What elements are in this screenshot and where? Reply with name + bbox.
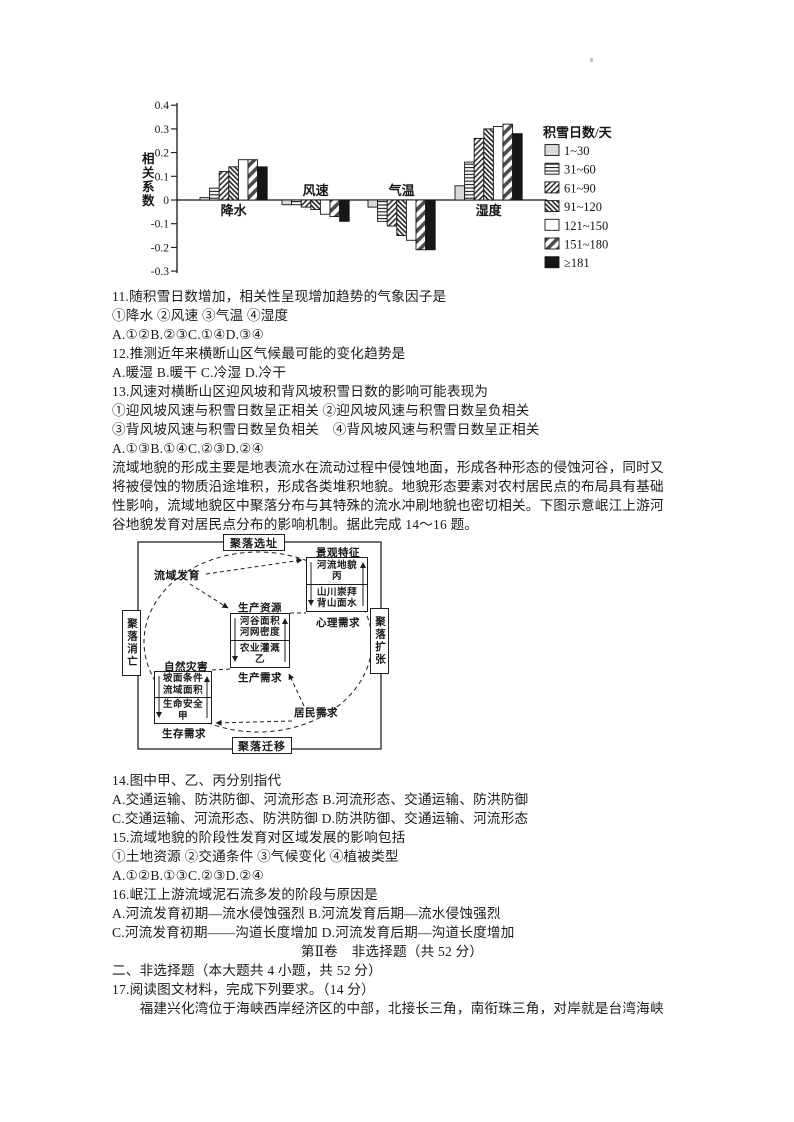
bar-风速-91~120: [311, 200, 321, 209]
question-14-answers-cd: C.交通运输、河流形态、防洪防御 D.防洪防御、交通运输、河流形态: [112, 809, 712, 828]
legend-label-0: 1~30: [564, 144, 590, 158]
bar-湿度-31~60: [465, 162, 475, 200]
y-tick-label: -0.1: [151, 219, 169, 231]
compound-box-resource: 河谷面积 河网密度 农业灌溉 乙: [230, 613, 290, 668]
bar-降水-91~120: [229, 167, 239, 200]
landscape-line-2: 丙: [332, 571, 342, 583]
legend-swatch-1: [545, 163, 559, 174]
question-11: 11.随积雪日数增加，相关性呈现增加趋势的气象因子是: [112, 287, 712, 306]
bar-风速-31~60: [292, 200, 302, 205]
correlation-chart: 0.40.30.20.10-0.1-0.2-0.3相关系数降水风速气温湿度积雪日…: [125, 85, 725, 290]
section-2-heading: 二、非选择题（本大题共 4 小题，共 52 分）: [112, 961, 712, 980]
bar-湿度-≥181: [513, 134, 523, 200]
question-15: 15.流域地貌的阶段性发育对区域发展的影响包括: [112, 828, 712, 847]
resource-top-section: 河谷面积 河网密度: [231, 614, 289, 640]
landscape-line-1: 河流地貌: [317, 560, 357, 572]
passage-line-3: 性影响，流域地貌区中聚落分布与其特殊的流水冲刷地貌也密切相关。下图示意岷江上游河: [112, 496, 712, 515]
passage-line-2: 将被侵蚀的物质沿途堆积，形成各类堆积地貌。地貌形态要素对农村居民点的布局具有基础: [112, 477, 712, 496]
box-settlement-expansion: 聚落扩张: [370, 608, 389, 674]
correlation-chart-svg: 0.40.30.20.10-0.1-0.2-0.3相关系数降水风速气温湿度积雪日…: [125, 85, 725, 290]
arrow-residents-to-disaster: [216, 721, 292, 723]
bar-湿度-151~180: [503, 124, 513, 200]
question-17-passage: 福建兴化湾位于海峡西岸经济区的中部，北接长三角，南衔珠三角，对岸就是台湾海峡: [112, 999, 712, 1018]
question-13: 13.风速对横断山区迎风坡和背风坡积雪日数的影响可能表现为: [112, 382, 712, 401]
category-label-1: 风速: [303, 183, 329, 198]
legend-title: 积雪日数/天: [543, 125, 613, 140]
question-13-options-2: ③背风坡风速与积雪日数呈负相关 ④背风坡风速与积雪日数呈正相关: [112, 420, 712, 439]
question-13-answers: A.①③B.①④C.②③D.②④: [112, 439, 712, 458]
legend-swatch-2: [545, 182, 559, 193]
label-watershed-development: 流域发育: [154, 567, 200, 583]
y-tick-label: 0.3: [155, 124, 170, 136]
question-14: 14.图中甲、乙、丙分别指代: [112, 771, 712, 790]
y-axis-title-char: 数: [141, 193, 155, 208]
connector-disaster-resource: [212, 669, 230, 670]
bar-降水-1~30: [200, 198, 210, 200]
y-tick-label: 0.2: [155, 148, 170, 160]
bar-湿度-61~90: [474, 138, 484, 200]
resource-line-3: 农业灌溉: [240, 643, 280, 655]
arrow-watershed-to-landscape: [206, 560, 302, 574]
bar-气温-121~150: [406, 200, 416, 240]
bar-风速-≥181: [340, 200, 350, 221]
bar-风速-121~150: [320, 200, 330, 214]
y-tick-label: 0: [163, 195, 169, 207]
question-16: 16.岷江上游流域泥石流多发的阶段与原因是: [112, 885, 712, 904]
resource-line-4: 乙: [255, 654, 265, 666]
legend-swatch-5: [545, 238, 559, 249]
category-label-2: 气温: [389, 183, 415, 198]
landscape-line-4: 背山面水: [317, 598, 357, 610]
settlement-mechanism-diagram: 聚落选址 聚落迁移 聚落消亡 聚落扩张 流域发育 景观特征 心理需求 生产资源 …: [118, 530, 398, 765]
bar-降水-31~60: [210, 188, 220, 200]
landscape-top-section: 河流地貌 丙: [307, 558, 367, 584]
resource-line-1: 河谷面积: [240, 616, 280, 628]
disaster-line-4: 甲: [178, 711, 188, 723]
legend-label-1: 31~60: [564, 163, 596, 177]
y-axis-title-char: 系: [142, 179, 155, 194]
y-axis-title-char: 关: [142, 165, 155, 180]
question-16-answers-ab: A.河流发育初期—流水侵蚀强烈 B.河流发育后期—流水侵蚀强烈: [112, 904, 712, 923]
resource-bottom-section: 农业灌溉 乙: [231, 640, 289, 667]
legend-swatch-0: [545, 145, 559, 156]
scan-artifact-dot: [590, 58, 593, 62]
box-settlement-siting: 聚落选址: [223, 534, 285, 551]
question-12-answers: A.暖湿 B.暖干 C.冷湿 D.冷干: [112, 363, 712, 382]
question-15-options: ①土地资源 ②交通条件 ③气候变化 ④植被类型: [112, 847, 712, 866]
compound-box-disaster: 坡面条件 流域面积 生命安全 甲: [154, 671, 212, 724]
bar-风速-61~90: [301, 200, 311, 207]
question-16-answers-cd: C.河流发育初期——沟道长度增加 D.河流发育后期—沟道长度增加: [112, 923, 712, 942]
bar-降水-61~90: [219, 172, 229, 200]
y-tick-label: 0.4: [155, 100, 170, 112]
legend-label-2: 61~90: [564, 181, 596, 195]
y-tick-label: 0.1: [155, 171, 170, 183]
category-label-0: 降水: [221, 203, 248, 218]
box-settlement-migration: 聚落迁移: [232, 737, 292, 754]
label-residents-need: 居民需求: [294, 705, 338, 720]
bar-降水-≥181: [258, 167, 268, 200]
question-11-options: ①降水 ②风速 ③气温 ④湿度: [112, 306, 712, 325]
bar-气温-1~30: [368, 200, 378, 207]
question-17: 17.阅读图文材料，完成下列要求。（14 分）: [112, 980, 712, 999]
bar-降水-121~150: [238, 160, 248, 200]
question-12: 12.推测近年来横断山区气候最可能的变化趋势是: [112, 344, 712, 363]
arrow-residents-to-resource: [289, 674, 304, 706]
question-14-answers-ab: A.交通运输、防洪防御、河流形态 B.河流形态、交通运输、防洪防御: [112, 790, 712, 809]
disaster-top-section: 坡面条件 流域面积: [155, 672, 211, 697]
legend-label-6: ≥181: [564, 256, 590, 270]
box-settlement-extinction: 聚落消亡: [122, 610, 141, 676]
resource-line-2: 河网密度: [240, 627, 280, 639]
disaster-bottom-section: 生命安全 甲: [155, 697, 211, 723]
label-production-need: 生产需求: [238, 670, 282, 685]
bar-气温-151~180: [416, 200, 426, 250]
bar-气温-31~60: [378, 200, 388, 221]
landscape-line-3: 山川崇拜: [317, 587, 357, 599]
question-11-answers: A.①②B.②③C.①④D.③④: [112, 325, 712, 344]
bar-湿度-1~30: [455, 186, 465, 200]
passage-line-1: 流域地貌的形成主要是地表流水在流动过程中侵蚀地面，形成各种形态的侵蚀河谷，同时又: [112, 458, 712, 477]
question-13-options-1: ①迎风坡风速与积雪日数呈正相关 ②迎风坡风速与积雪日数呈负相关: [112, 401, 712, 420]
y-tick-label: -0.3: [151, 266, 169, 278]
compound-box-landscape: 河流地貌 丙 山川崇拜 背山面水: [306, 557, 368, 612]
legend-label-4: 121~150: [564, 219, 608, 233]
bar-风速-1~30: [282, 200, 292, 205]
legend-swatch-6: [545, 257, 559, 268]
question-15-answers: A.①②B.①③C.②③D.②④: [112, 866, 712, 885]
arrow-watershed-to-resource: [190, 584, 228, 608]
bar-降水-151~180: [248, 160, 258, 200]
bar-气温-61~90: [387, 200, 397, 226]
disaster-line-1: 坡面条件: [163, 673, 203, 685]
y-axis-title-char: 相: [142, 151, 155, 166]
label-psychological-need: 心理需求: [316, 615, 360, 630]
questions-block-2: 14.图中甲、乙、丙分别指代 A.交通运输、防洪防御、河流形态 B.河流形态、交…: [112, 771, 712, 1018]
section-2-title: 第Ⅱ卷 非选择题（共 52 分）: [112, 942, 672, 961]
bar-气温-≥181: [426, 200, 436, 250]
disaster-line-2: 流域面积: [163, 685, 203, 697]
legend-label-5: 151~180: [564, 238, 608, 252]
bar-湿度-121~150: [493, 127, 503, 200]
legend-swatch-3: [545, 201, 559, 212]
category-label-3: 湿度: [476, 203, 503, 218]
bar-风速-151~180: [330, 200, 340, 217]
landscape-bottom-section: 山川崇拜 背山面水: [307, 584, 367, 611]
bar-气温-91~120: [397, 200, 407, 236]
y-tick-label: -0.2: [151, 242, 169, 254]
disaster-line-3: 生命安全: [163, 699, 203, 711]
legend-swatch-4: [545, 219, 559, 230]
questions-block-1: 11.随积雪日数增加，相关性呈现增加趋势的气象因子是 ①降水 ②风速 ③气温 ④…: [112, 287, 712, 534]
label-survival-need: 生存需求: [162, 726, 206, 741]
legend-label-3: 91~120: [564, 200, 602, 214]
bar-湿度-91~120: [484, 129, 494, 200]
